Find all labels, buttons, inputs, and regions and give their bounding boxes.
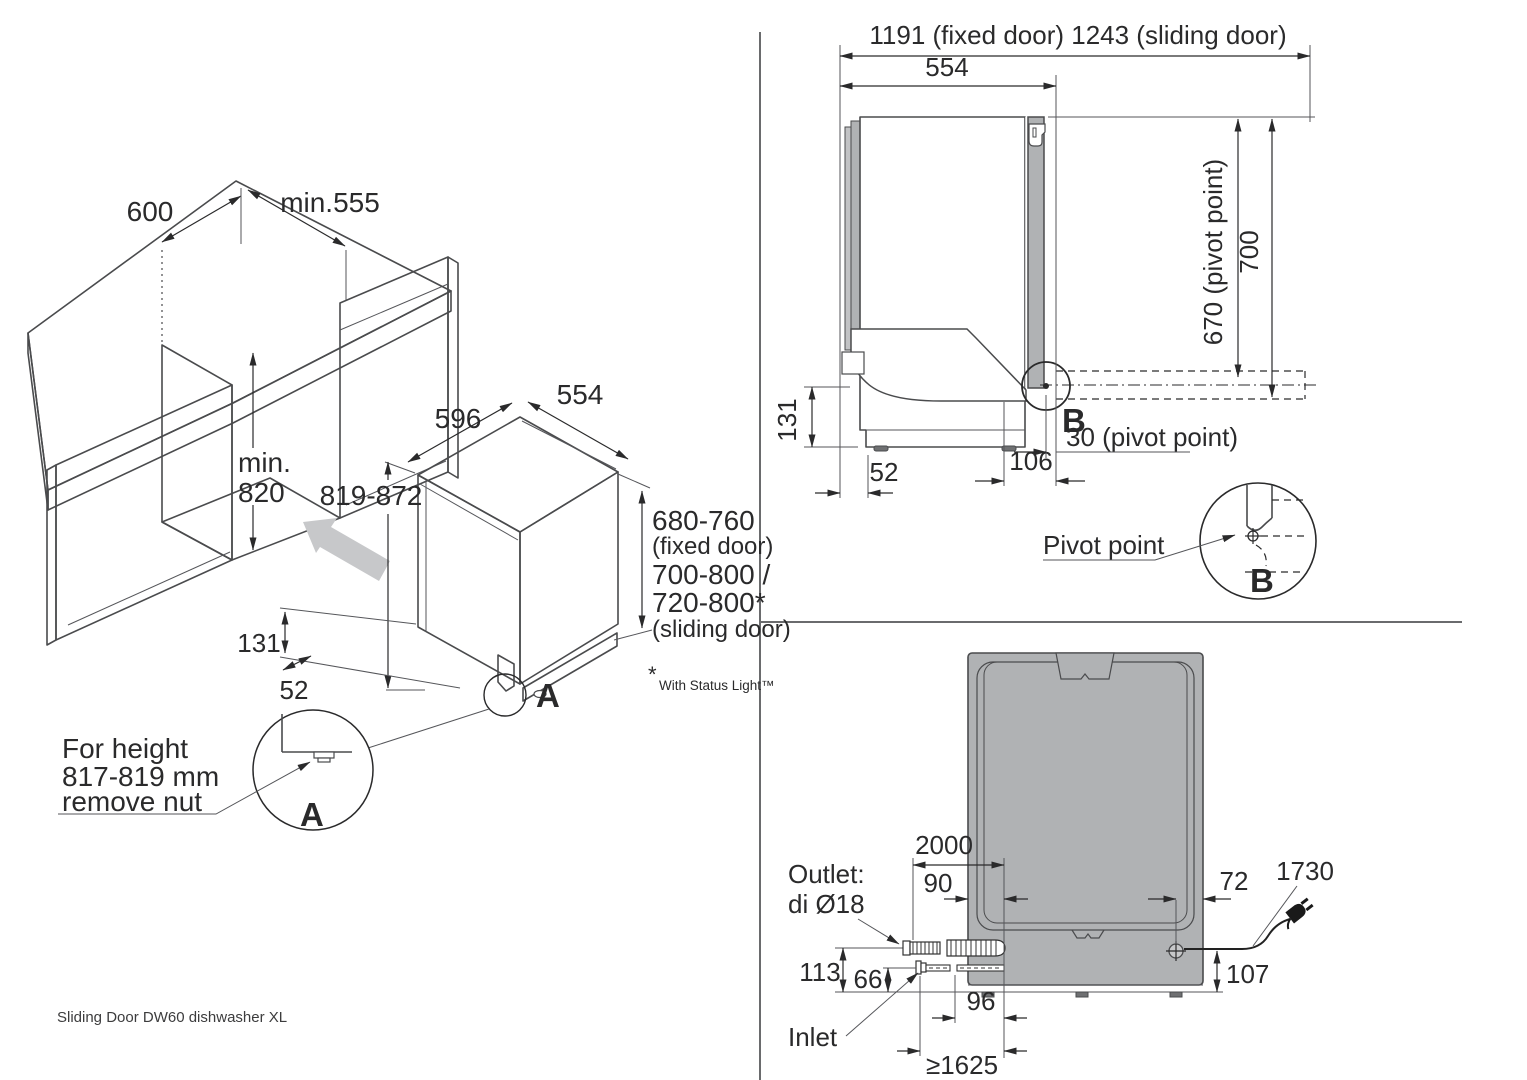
dishwasher-side-face [520,472,618,684]
pivot-detail-view: B Pivot point [1043,483,1316,599]
outlet-hose-a [910,942,940,954]
dim-door-sliding-2: 720-800* [652,587,766,618]
detail-a-nut-top [314,752,334,758]
dim-rear-cord-offset: 72 [1220,866,1249,896]
pivot-point-label: Pivot point [1043,530,1165,560]
dim-dw-height: 819-872 [320,480,423,511]
outlet-hose-b [947,940,1005,956]
dim-rear-outlet-height: 113 [799,957,840,987]
outlet-leader [858,919,899,944]
cabinet-isometric-view: 600 min.555 min. 820 [28,181,458,645]
side-view: B 1191 (fixed door) 1243 (sliding door) … [772,20,1318,498]
ext-131-top [280,608,416,624]
side-door-panel [1028,117,1044,388]
technical-drawing: 600 min.555 min. 820 596 554 819-872 [0,0,1527,1080]
dim-opening-width: 600 [127,196,174,227]
detail-a-marker-label: A [536,677,560,714]
dim-opening-depth: min.555 [280,187,380,218]
dim-side-pivot-height: 670 (pivot point) [1198,159,1228,345]
inlet-bolt [916,961,921,974]
outlet-label-2: di Ø18 [788,889,865,919]
side-foot-rear [874,446,888,451]
dim-line-600 [162,196,241,242]
outlet-label-1: Outlet: [788,859,865,889]
detail-a-note-1: For height [62,733,188,764]
inlet-bolt-2 [921,963,926,972]
dishwasher-door-face [418,475,520,684]
side-rear-strip-2 [851,121,860,350]
dim-rear-hose: 2000 [915,830,973,860]
dim-rear-cord-length: 1730 [1276,856,1334,886]
dim-rear-inlet-offset: 96 [967,986,996,1016]
side-rear-collar [842,352,864,374]
rear-view: 2000 90 72 1730 Outlet: di Ø18 113 66 10… [788,653,1334,1080]
dim-door-fixed-note: (fixed door) [652,533,773,560]
dim-dw-depth: 554 [557,379,604,410]
left-cabinet-plinth-line [68,552,230,625]
outlet-nut [903,941,910,955]
dim-dw-toe: 52 [280,675,309,705]
inlet-label: Inlet [788,1022,838,1052]
countertop-top-face [28,181,451,490]
rear-foot-2 [1076,992,1088,997]
door-hinge-slot [1033,128,1036,137]
door-top-line [420,484,518,540]
dim-rear-outlet-offset: 90 [924,868,953,898]
ext-door-top [618,474,650,488]
dim-door-sliding-1: 700-800 / [652,559,771,590]
side-rear-strip-1 [845,127,851,350]
right-cabinet-drawer-line [340,284,448,330]
dim-side-total: 1191 (fixed door) 1243 (sliding door) [869,20,1286,50]
dim-dw-width: 596 [435,403,482,434]
dim-rear-inlet-height: 66 [854,964,883,994]
dim-door-sliding-note: (sliding door) [652,616,791,643]
ext-height-top [385,462,415,473]
drawing-caption: Sliding Door DW60 dishwasher XL [57,1009,287,1026]
power-plug-icon [1279,896,1315,929]
ext-door-bottom [614,630,652,640]
rear-body [968,653,1203,985]
side-sump-cutout [851,329,1026,401]
left-cabinet-front [56,385,232,640]
detail-a-leader [368,709,489,748]
pivot-point-dot [1043,383,1049,389]
detail-a-label: A [300,796,324,833]
dim-side-pivot-note: 30 (pivot point) [1066,422,1238,452]
dim-side-total-height: 700 [1234,230,1264,273]
detail-a-view: For height 817-819 mm remove nut A [58,710,373,833]
slide-in-arrow [303,518,390,581]
dim-door-fixed: 680-760 [652,505,755,536]
footnote-star: * [648,662,657,687]
footnote-text: With Status Light™ [659,678,775,693]
detail-a-note-3: remove nut [62,786,202,817]
dim-side-toe: 52 [870,457,899,487]
detail-a-nut-bottom [318,758,330,762]
dim-side-plinth: 131 [772,398,802,441]
countertop-left-end [28,333,48,510]
detail-b-label: B [1250,562,1274,599]
dim-side-depth: 554 [925,52,968,82]
rear-foot-3 [1170,992,1182,997]
detail-a-marker-circle [484,674,526,716]
dim-rear-cord-height: 107 [1226,959,1269,989]
dim-opening-height-2: 820 [238,477,285,508]
dim-opening-height-1: min. [238,447,291,478]
dim-rear-inlet-hose: ≥1625 [926,1050,998,1080]
installation-drawing-page: 600 min.555 min. 820 596 554 819-872 [0,0,1527,1080]
top-face-inner-line [522,421,616,469]
right-cabinet-front [340,257,448,518]
dim-dw-plinth: 131 [237,628,280,658]
